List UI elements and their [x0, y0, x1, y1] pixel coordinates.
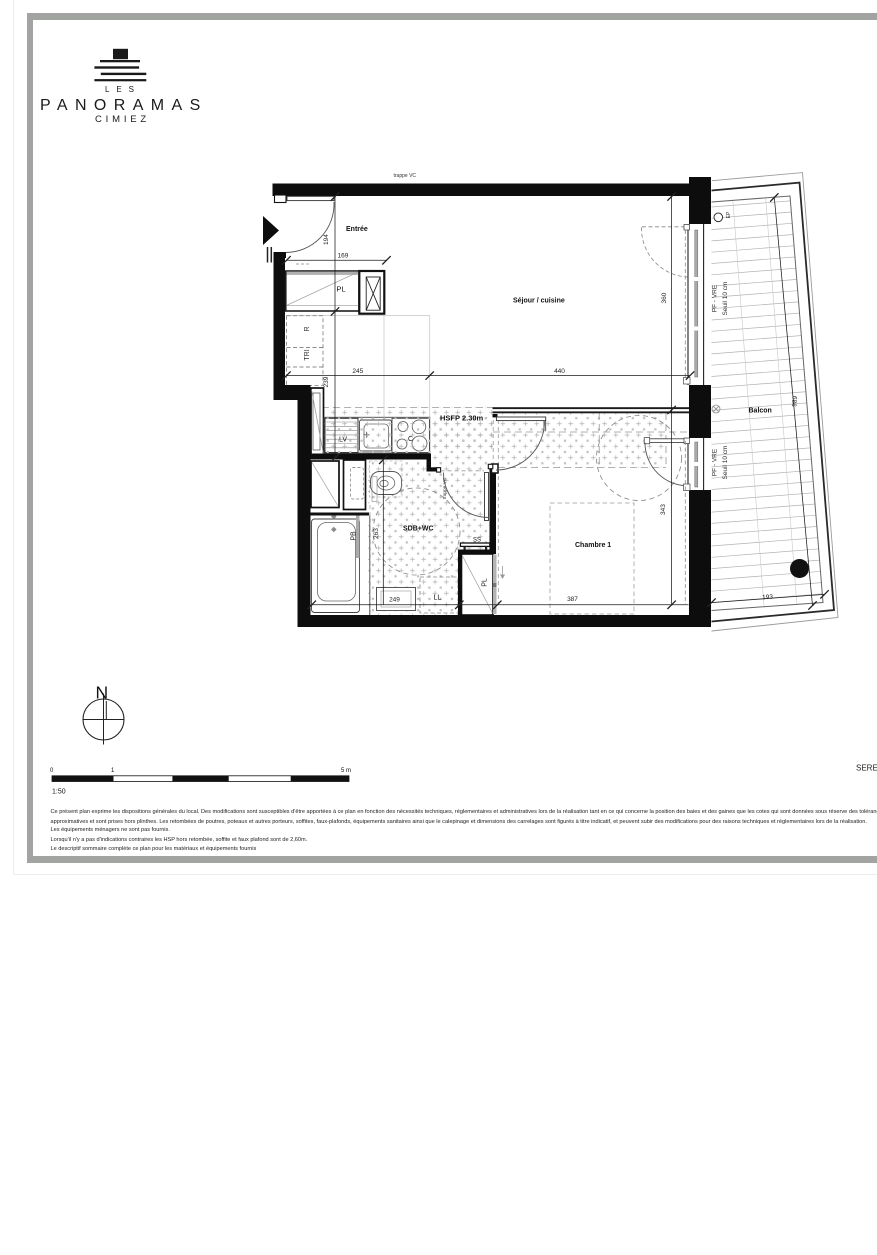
- svg-text:R: R: [304, 326, 311, 331]
- svg-text:HSFP 2.30m: HSFP 2.30m: [440, 414, 484, 423]
- svg-text:SDB+WC: SDB+WC: [403, 526, 434, 533]
- svg-text:1: 1: [111, 768, 115, 774]
- svg-text:Seuil 10 cm: Seuil 10 cm: [722, 446, 729, 480]
- svg-text:trappe VC: trappe VC: [394, 173, 417, 179]
- svg-text:Les équipements ménagers ne so: Les équipements ménagers ne sont pas fou…: [51, 827, 171, 833]
- svg-text:N: N: [96, 683, 109, 703]
- svg-text:LL: LL: [434, 595, 442, 602]
- svg-text:193: 193: [762, 594, 774, 602]
- svg-text:1:50: 1:50: [52, 789, 66, 796]
- svg-text:SERENITE: SERENITE: [856, 764, 877, 773]
- svg-text:PF - VRE: PF - VRE: [712, 448, 719, 476]
- svg-text:249: 249: [389, 597, 400, 604]
- svg-text:169: 169: [338, 253, 349, 260]
- svg-text:5 m: 5 m: [341, 768, 351, 774]
- svg-text:trappe VC: trappe VC: [442, 477, 448, 499]
- svg-text:343: 343: [660, 504, 667, 515]
- svg-text:440: 440: [554, 368, 565, 375]
- svg-text:Ce présent plan exprime les di: Ce présent plan exprime les dispositions…: [51, 809, 877, 815]
- svg-text:387: 387: [567, 596, 578, 603]
- svg-text:989: 989: [791, 395, 799, 407]
- svg-text:Lorsqu'il n'y a pas d'indicati: Lorsqu'il n'y a pas d'indications contra…: [51, 837, 308, 843]
- svg-text:194: 194: [323, 234, 330, 245]
- svg-text:263: 263: [373, 528, 380, 539]
- svg-text:PL: PL: [336, 285, 345, 294]
- svg-text:360: 360: [661, 292, 668, 303]
- svg-text:245: 245: [352, 368, 363, 375]
- svg-text:Le descriptif sommaire complèt: Le descriptif sommaire complète ce plan …: [51, 846, 257, 852]
- svg-text:Chambre 1: Chambre 1: [575, 542, 611, 549]
- svg-text:approximatives et sont prises: approximatives et sont prises hors plint…: [51, 819, 868, 825]
- svg-text:Séjour / cuisine: Séjour / cuisine: [513, 298, 565, 305]
- svg-text:TRI: TRI: [304, 349, 311, 360]
- svg-text:EP: EP: [726, 211, 732, 218]
- svg-text:Balcon: Balcon: [749, 408, 772, 415]
- svg-text:PL: PL: [482, 578, 489, 587]
- svg-text:Seuil 10 cm: Seuil 10 cm: [722, 282, 729, 316]
- svg-text:Entrée: Entrée: [346, 226, 368, 233]
- svg-text:0: 0: [50, 768, 54, 774]
- svg-text:PF - VRE: PF - VRE: [712, 284, 719, 312]
- svg-text:239: 239: [323, 376, 330, 387]
- svg-text:SS: SS: [473, 538, 481, 544]
